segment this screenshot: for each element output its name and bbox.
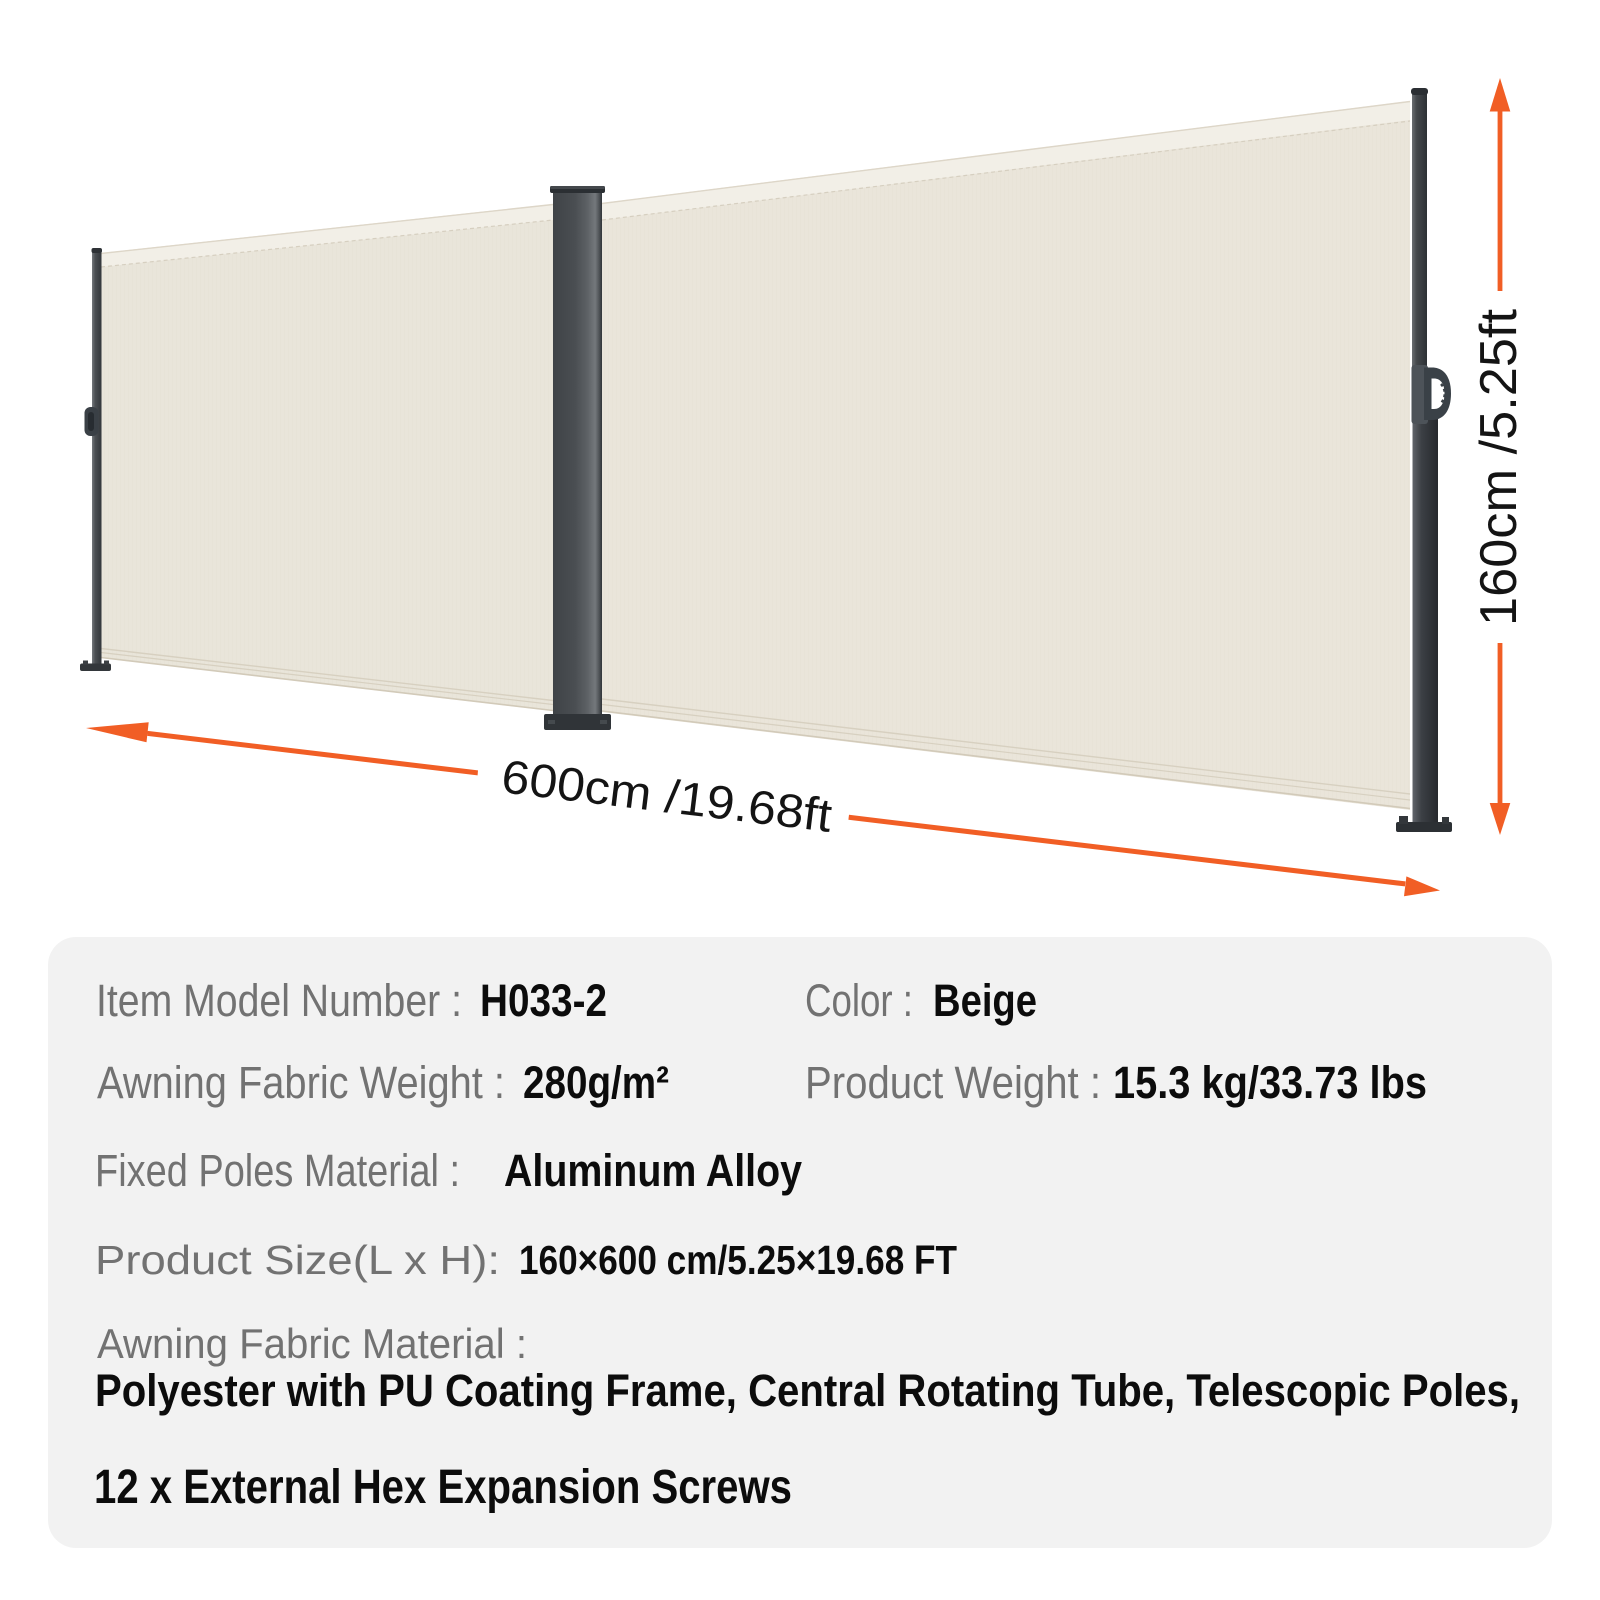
svg-text:12 x External Hex Expansion Sc: 12 x External Hex Expansion Screws xyxy=(94,1461,792,1514)
svg-text:Item Model Number :: Item Model Number : xyxy=(96,975,462,1026)
svg-text:160×600 cm/5.25×19.68 FT: 160×600 cm/5.25×19.68 FT xyxy=(519,1237,957,1283)
svg-text:Aluminum Alloy: Aluminum Alloy xyxy=(504,1145,802,1196)
svg-text:15.3 kg/33.73 lbs: 15.3 kg/33.73 lbs xyxy=(1113,1057,1427,1108)
svg-text:Color :: Color : xyxy=(805,975,913,1026)
svg-text:Product Size(L x H):: Product Size(L x H): xyxy=(95,1237,500,1283)
svg-text:Beige: Beige xyxy=(933,975,1037,1026)
svg-text:160cm /5.25ft: 160cm /5.25ft xyxy=(1470,308,1528,626)
svg-text:280g/m²: 280g/m² xyxy=(523,1057,669,1108)
svg-text:Polyester with PU Coating Fram: Polyester with PU Coating Frame, Central… xyxy=(95,1365,1520,1416)
svg-text:Awning Fabric Weight :: Awning Fabric Weight : xyxy=(97,1057,505,1108)
svg-text:Fixed Poles Material :: Fixed Poles Material : xyxy=(95,1145,460,1196)
svg-text:Awning Fabric Material :: Awning Fabric Material : xyxy=(97,1320,527,1367)
svg-text:Product Weight :: Product Weight : xyxy=(805,1057,1101,1108)
svg-text:H033-2: H033-2 xyxy=(480,975,607,1026)
